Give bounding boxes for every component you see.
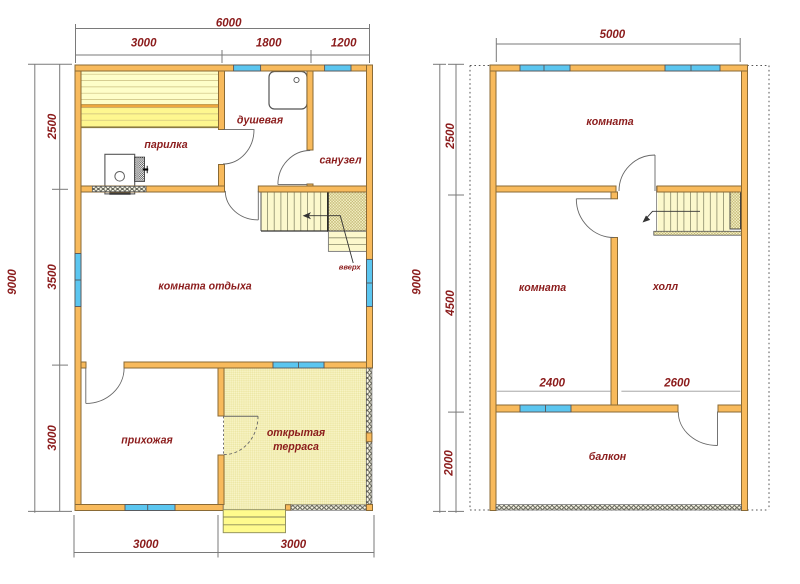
svg-text:2600: 2600 (663, 377, 690, 389)
svg-text:3000: 3000 (133, 539, 159, 551)
svg-text:5000: 5000 (600, 29, 626, 41)
svg-text:6000: 6000 (216, 18, 242, 30)
svg-text:9000: 9000 (7, 269, 19, 295)
svg-text:балкон: балкон (589, 451, 627, 463)
svg-text:комната: комната (519, 282, 566, 294)
svg-text:3500: 3500 (47, 264, 59, 290)
svg-text:санузел: санузел (319, 155, 361, 167)
svg-text:3000: 3000 (131, 38, 157, 50)
svg-text:2500: 2500 (445, 123, 457, 150)
svg-text:1800: 1800 (256, 38, 282, 50)
svg-text:2000: 2000 (444, 450, 456, 477)
svg-text:парилка: парилка (144, 139, 187, 151)
svg-text:3000: 3000 (47, 425, 59, 451)
svg-text:душевая: душевая (237, 115, 284, 127)
svg-text:комната: комната (586, 116, 633, 128)
svg-text:вверх: вверх (339, 263, 362, 272)
svg-text:9000: 9000 (412, 269, 424, 295)
svg-text:комната отдыха: комната отдыха (158, 281, 251, 293)
svg-text:3000: 3000 (281, 539, 307, 551)
svg-text:4500: 4500 (445, 290, 457, 317)
svg-text:открытая: открытая (267, 427, 326, 439)
svg-text:холл: холл (652, 281, 679, 293)
svg-text:терраса: терраса (273, 441, 319, 453)
svg-text:2400: 2400 (539, 377, 566, 389)
svg-text:2500: 2500 (47, 113, 59, 140)
svg-text:прихожая: прихожая (121, 434, 173, 446)
svg-text:1200: 1200 (331, 38, 357, 50)
